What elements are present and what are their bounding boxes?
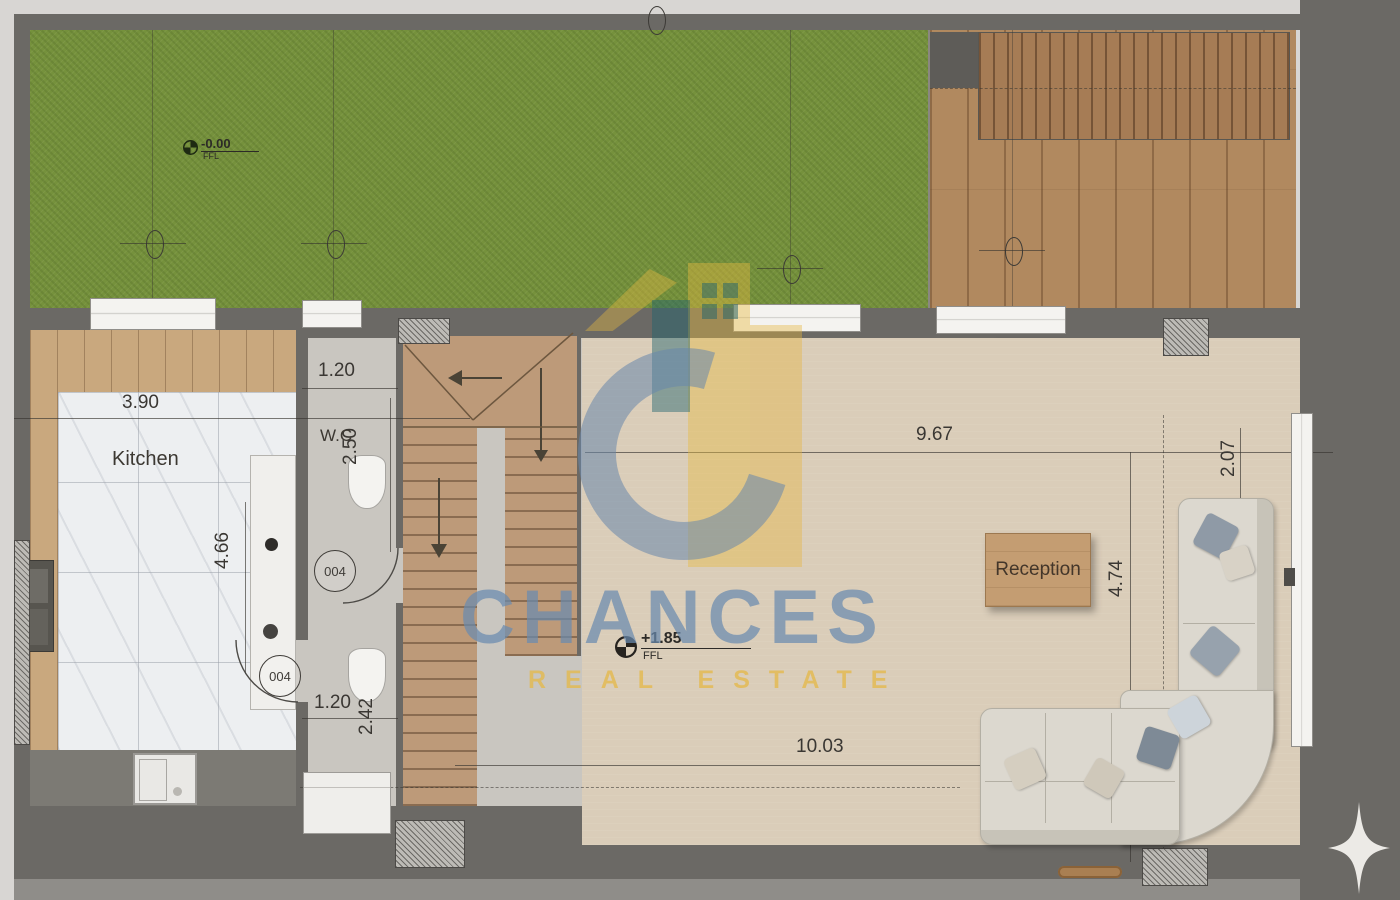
dim-line: [302, 388, 398, 389]
garden-level-value: -0.00: [201, 136, 259, 152]
wall-right-block: [1300, 0, 1400, 900]
dim-line: [302, 718, 398, 719]
dim-reception-width-bottom: 10.03: [796, 736, 844, 758]
site-edge-bottom: [14, 879, 1300, 900]
door-tag-label: 004: [269, 669, 291, 684]
grid-marker-icon: [648, 6, 666, 35]
grid-marker-tick: [301, 243, 367, 244]
wc-bidet: [348, 648, 386, 702]
dim-wc-width-top: 1.20: [318, 360, 355, 382]
reception-label: Reception: [995, 559, 1081, 581]
grid-marker-tick: [120, 243, 186, 244]
wall-left: [14, 14, 30, 880]
column-hatch: [1163, 318, 1209, 356]
wall-top: [14, 14, 1400, 30]
stair-arrow-line: [438, 478, 440, 544]
kitchen-sink: [133, 753, 197, 805]
kitchen-wc-wall: [296, 338, 308, 640]
reception-door-west: [733, 304, 861, 332]
stair-arrow-line: [462, 377, 502, 379]
level-marker-icon: [615, 636, 637, 663]
deck-centerline: [930, 88, 1296, 89]
kitchen-window: [90, 298, 216, 330]
dim-hall-width: 1.20: [314, 692, 351, 714]
dim-kitchen-width: 3.90: [122, 392, 159, 414]
reception-table: Reception: [985, 533, 1091, 607]
reception-level-value: +1.85: [641, 630, 751, 649]
dim-sofa-bay-depth: 2.07: [1218, 440, 1240, 477]
sparkle-icon: [1328, 802, 1390, 899]
stair-flight-right: [505, 428, 577, 656]
garden-deck-divider: [928, 30, 930, 310]
level-marker-icon: [183, 140, 198, 160]
stair-arrow-icon: [534, 450, 548, 462]
dim-reception-width-top: 9.67: [916, 424, 953, 446]
window-handle: [1284, 568, 1295, 586]
grid-marker-tick: [979, 250, 1045, 251]
wc-washbasin: [303, 772, 391, 834]
door-tag-kitchen: 004: [259, 655, 301, 697]
wc-label: W.C: [320, 426, 352, 446]
grid-marker-tick: [757, 268, 823, 269]
dim-line: [14, 418, 470, 419]
grid-marker-icon: [146, 230, 164, 259]
reception-door-east: [936, 306, 1066, 334]
kitchen-counter-top: [30, 330, 296, 392]
deck-corner-column: [930, 32, 978, 88]
dim-hall-depth: 2.42: [356, 698, 378, 735]
centerline: [300, 787, 960, 788]
kitchen-south-wall: [14, 806, 582, 848]
stair-arrow-line: [540, 368, 542, 450]
door-tag-wc: 004: [314, 550, 356, 592]
door-tag-label: 004: [324, 564, 346, 579]
sink-basin: [139, 759, 167, 801]
stair-side-wall: [577, 336, 581, 656]
grid-marker-icon: [327, 230, 345, 259]
grid-marker-icon: [1005, 237, 1023, 266]
stair-void: [477, 428, 505, 656]
sofa-cushion-line: [1183, 623, 1255, 624]
hob-dot: [263, 624, 278, 639]
reception-level-unit: FFL: [643, 650, 663, 662]
grid-marker-icon: [783, 255, 801, 284]
stair-arrow-icon: [448, 370, 462, 386]
kitchen-label: Kitchen: [112, 448, 179, 471]
hob-dot: [265, 538, 278, 551]
sink-drain: [173, 787, 182, 796]
stair-flight-left: [403, 428, 477, 806]
deck-slat-inset: [978, 32, 1290, 140]
dim-reception-depth: 4.74: [1106, 560, 1128, 597]
wc-window: [302, 300, 362, 328]
dim-line: [390, 398, 391, 552]
floor-plan: -0.00 FFL: [0, 0, 1400, 900]
dim-line: [245, 502, 246, 674]
grid-line-d: [1012, 30, 1013, 310]
left-wall-hatch: [14, 540, 30, 745]
stair-landing: [403, 336, 577, 428]
entry-handle: [1058, 866, 1122, 878]
sofa-cushion-line: [1045, 713, 1046, 823]
dim-kitchen-depth: 4.66: [212, 532, 234, 569]
washbasin-line: [304, 787, 390, 788]
column-hatch: [398, 318, 450, 344]
garden-level-unit: FFL: [203, 151, 219, 161]
stair-arrow-icon: [431, 544, 447, 558]
column-hatch: [395, 820, 465, 868]
column-hatch: [1142, 848, 1208, 886]
